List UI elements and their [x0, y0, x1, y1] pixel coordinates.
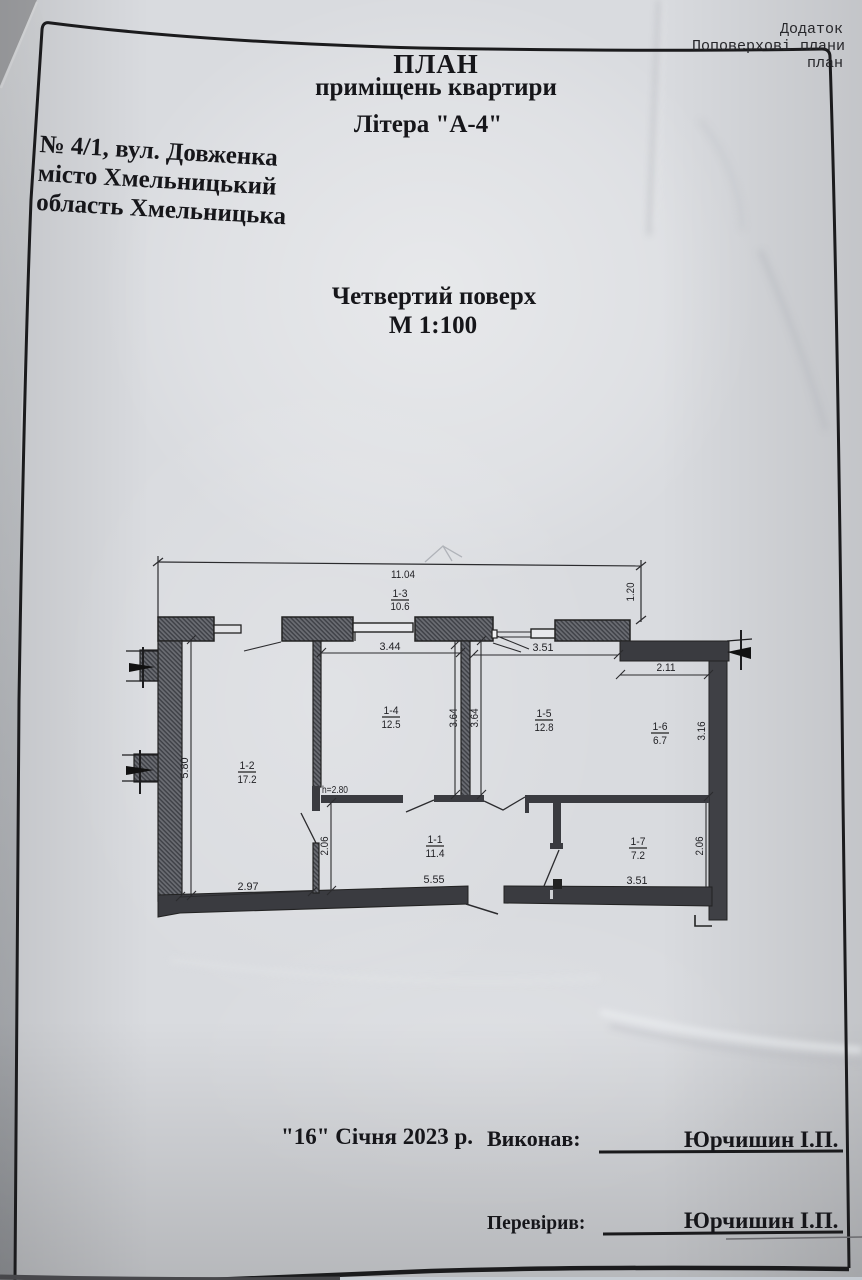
svg-text:12.8: 12.8 [535, 722, 554, 734]
svg-text:6.7: 6.7 [653, 735, 667, 747]
svg-text:1-6: 1-6 [653, 721, 668, 733]
svg-text:3.16: 3.16 [696, 722, 708, 741]
svg-text:Поповерхові плани: Поповерхові плани [692, 38, 845, 55]
svg-text:7.2: 7.2 [631, 850, 645, 862]
svg-text:h=2.80: h=2.80 [322, 785, 348, 796]
svg-text:Юрчишин І.П.: Юрчишин І.П. [684, 1208, 838, 1233]
svg-text:10.6: 10.6 [391, 601, 410, 613]
svg-text:2.11: 2.11 [657, 662, 676, 674]
svg-text:5.80: 5.80 [179, 758, 191, 779]
svg-text:3.44: 3.44 [380, 641, 401, 653]
svg-text:план: план [807, 55, 843, 72]
svg-text:12.5: 12.5 [382, 719, 401, 731]
svg-text:Літера "А-4": Літера "А-4" [354, 111, 502, 138]
svg-text:Перевірив:: Перевірив: [487, 1213, 585, 1234]
svg-text:1-1: 1-1 [428, 834, 443, 846]
svg-text:Виконав:: Виконав: [487, 1126, 581, 1151]
svg-text:1-2: 1-2 [240, 760, 255, 772]
svg-text:1.20: 1.20 [625, 583, 637, 602]
svg-text:Додаток: Додаток [780, 21, 843, 38]
svg-text:"16" Січня 2023 р.: "16" Січня 2023 р. [281, 1124, 473, 1149]
svg-text:3.64: 3.64 [448, 709, 460, 728]
svg-text:3.51: 3.51 [533, 642, 554, 654]
svg-text:11.04: 11.04 [391, 569, 415, 581]
svg-text:1-5: 1-5 [537, 708, 552, 720]
svg-text:17.2: 17.2 [238, 774, 257, 786]
svg-text:2.97: 2.97 [238, 881, 259, 893]
svg-text:М 1:100: М 1:100 [389, 312, 477, 339]
svg-text:2.06: 2.06 [694, 837, 706, 856]
svg-text:5.55: 5.55 [424, 874, 445, 886]
svg-text:11.4: 11.4 [426, 848, 445, 860]
svg-text:1-3: 1-3 [393, 588, 408, 600]
svg-text:3.64: 3.64 [469, 709, 481, 728]
svg-text:2.06: 2.06 [319, 837, 331, 856]
svg-text:Юрчишин І.П.: Юрчишин І.П. [684, 1127, 838, 1152]
svg-text:приміщень квартири: приміщень квартири [315, 74, 557, 101]
svg-text:1-7: 1-7 [631, 836, 646, 848]
svg-text:1-4: 1-4 [384, 705, 399, 717]
svg-text:3.51: 3.51 [627, 875, 648, 887]
svg-text:Четвертий поверх: Четвертий поверх [332, 283, 537, 310]
